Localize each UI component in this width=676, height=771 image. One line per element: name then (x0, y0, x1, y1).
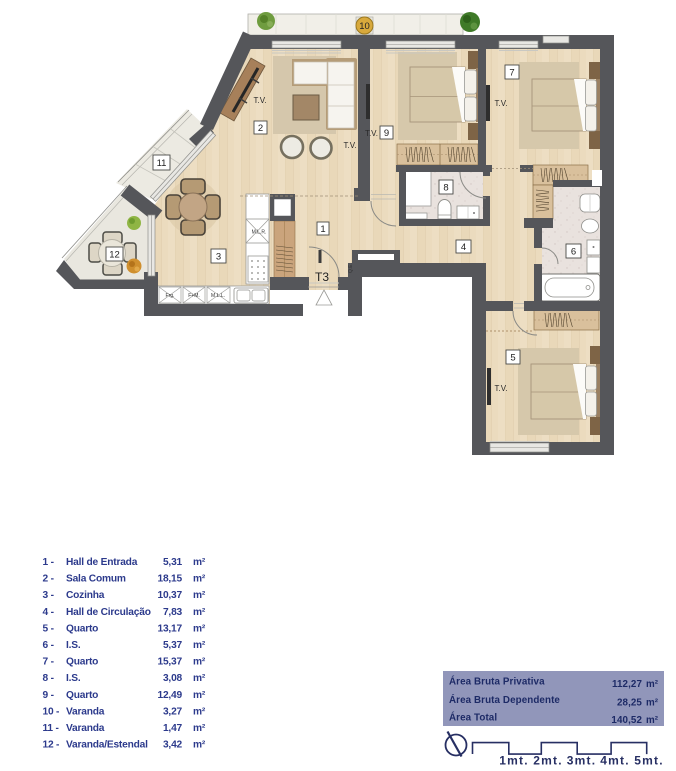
svg-text:5: 5 (510, 353, 515, 364)
svg-text:8 -: 8 - (43, 673, 54, 684)
svg-text:m²: m² (193, 723, 206, 734)
svg-text:12,49: 12,49 (158, 690, 183, 701)
svg-text:2mt.: 2mt. (533, 754, 562, 768)
svg-text:Sala Comum: Sala Comum (66, 574, 126, 585)
svg-text:3 -: 3 - (43, 590, 54, 601)
svg-text:1 -: 1 - (43, 557, 54, 568)
svg-text:5 -: 5 - (43, 623, 54, 634)
svg-text:F+M.: F+M. (188, 293, 200, 299)
svg-text:m²: m² (193, 706, 206, 717)
svg-text:3mt.: 3mt. (567, 754, 596, 768)
svg-text:9 -: 9 - (43, 690, 54, 701)
svg-text:m²: m² (646, 698, 659, 709)
svg-text:T.V.: T.V. (494, 99, 507, 108)
svg-text:m²: m² (193, 640, 206, 651)
svg-text:m²: m² (193, 657, 206, 668)
svg-text:Hall de Circulação: Hall de Circulação (66, 607, 151, 618)
svg-text:140,52: 140,52 (611, 715, 642, 726)
svg-text:12: 12 (109, 250, 120, 261)
svg-text:T.V.: T.V. (494, 384, 507, 393)
svg-text:3,42: 3,42 (163, 740, 183, 751)
svg-text:T.V.: T.V. (343, 141, 356, 150)
svg-text:3,27: 3,27 (163, 706, 183, 717)
svg-text:2: 2 (258, 123, 263, 134)
svg-text:1: 1 (320, 224, 325, 235)
svg-text:3,08: 3,08 (163, 673, 183, 684)
svg-text:I.S.: I.S. (66, 673, 81, 684)
svg-text:5,37: 5,37 (163, 640, 183, 651)
svg-text:m²: m² (193, 623, 206, 634)
svg-text:15,37: 15,37 (158, 657, 183, 668)
svg-text:Frg.: Frg. (166, 293, 175, 299)
svg-text:11: 11 (157, 158, 167, 169)
svg-text:13,17: 13,17 (158, 623, 183, 634)
svg-text:10: 10 (359, 21, 370, 32)
svg-text:T3: T3 (315, 270, 329, 284)
svg-text:Hall de Entrada: Hall de Entrada (66, 557, 138, 568)
svg-text:Varanda/Estendal: Varanda/Estendal (66, 740, 148, 751)
svg-text:4mt.: 4mt. (600, 754, 629, 768)
svg-text:Quarto: Quarto (66, 657, 98, 668)
svg-text:Varanda: Varanda (66, 706, 105, 717)
svg-text:10 -: 10 - (43, 706, 60, 717)
svg-text:I.S.: I.S. (66, 640, 81, 651)
svg-text:4 -: 4 - (43, 607, 54, 618)
svg-text:2 -: 2 - (43, 574, 54, 585)
svg-text:M.L.R.: M.L.R. (252, 230, 267, 236)
svg-text:1mt.: 1mt. (499, 754, 528, 768)
svg-text:18,15: 18,15 (158, 574, 183, 585)
svg-text:Q.E.: Q.E. (348, 263, 354, 273)
svg-text:12 -: 12 - (43, 740, 60, 751)
svg-text:Varanda: Varanda (66, 723, 105, 734)
svg-text:T.V.: T.V. (365, 129, 378, 138)
svg-text:Área Bruta Privativa: Área Bruta Privativa (449, 676, 545, 688)
svg-text:8: 8 (443, 183, 448, 194)
svg-text:Quarto: Quarto (66, 623, 98, 634)
svg-text:7 -: 7 - (43, 657, 54, 668)
svg-text:28,25: 28,25 (617, 698, 642, 709)
svg-text:Área Total: Área Total (449, 712, 497, 724)
svg-text:m²: m² (193, 690, 206, 701)
svg-text:5mt.: 5mt. (634, 754, 663, 768)
svg-text:T.V.: T.V. (253, 96, 266, 105)
svg-text:1,47: 1,47 (163, 723, 183, 734)
svg-text:4: 4 (461, 242, 466, 253)
svg-text:m²: m² (193, 574, 206, 585)
svg-text:6 -: 6 - (43, 640, 54, 651)
svg-text:m²: m² (193, 590, 206, 601)
svg-text:Cozinha: Cozinha (66, 590, 105, 601)
svg-text:M.L.L.: M.L.L. (211, 293, 225, 299)
svg-text:Quarto: Quarto (66, 690, 98, 701)
svg-text:11 -: 11 - (43, 723, 59, 734)
svg-text:m²: m² (193, 557, 206, 568)
svg-text:3: 3 (216, 252, 221, 263)
svg-text:112,27: 112,27 (612, 679, 642, 690)
svg-text:m²: m² (646, 715, 659, 726)
svg-text:10,37: 10,37 (158, 590, 183, 601)
svg-text:6: 6 (571, 247, 576, 258)
svg-text:m²: m² (193, 607, 206, 618)
svg-text:m²: m² (193, 740, 206, 751)
svg-text:m²: m² (646, 679, 659, 690)
svg-text:Área Bruta Dependente: Área Bruta Dependente (449, 694, 560, 706)
svg-text:m²: m² (193, 673, 206, 684)
svg-text:7,83: 7,83 (163, 607, 183, 618)
svg-text:7: 7 (509, 68, 514, 79)
svg-text:9: 9 (384, 128, 389, 139)
svg-text:5,31: 5,31 (163, 557, 183, 568)
